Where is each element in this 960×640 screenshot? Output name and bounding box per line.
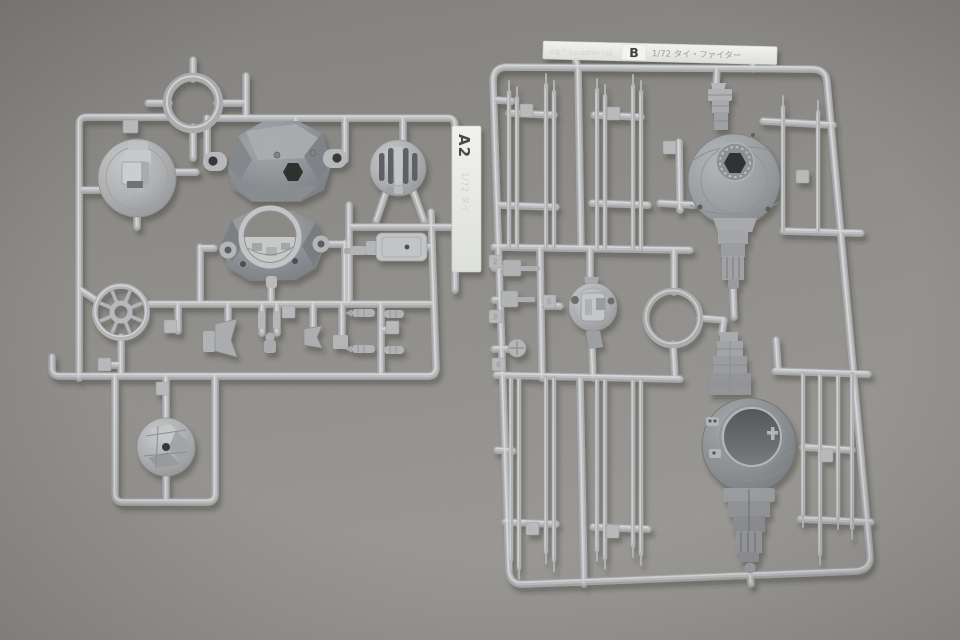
kit-photo-canvas: A2 1/72 タイ (0, 0, 960, 640)
model-kit-photo: A2 1/72 タイ (0, 0, 960, 640)
vignette-overlay (0, 0, 960, 640)
